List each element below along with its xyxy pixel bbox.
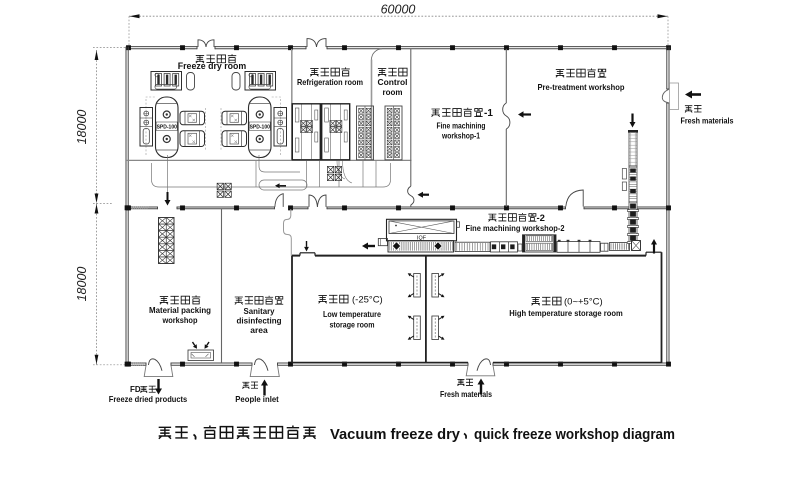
- svg-text:Fresh materials: Fresh materials: [440, 389, 492, 399]
- svg-text:disinfecting: disinfecting: [237, 316, 282, 326]
- svg-text:SPD-100: SPD-100: [157, 125, 178, 131]
- svg-text:SPD-100: SPD-100: [250, 125, 271, 131]
- svg-text:Low temperature: Low temperature: [323, 309, 381, 319]
- svg-text:(-25°C): (-25°C): [352, 295, 383, 306]
- svg-text:Pre-treatment workshop: Pre-treatment workshop: [538, 82, 625, 92]
- svg-text:Sanitary: Sanitary: [244, 306, 275, 316]
- svg-text:18000: 18000: [75, 267, 89, 302]
- svg-text:area: area: [250, 325, 268, 335]
- svg-text:Fine machining: Fine machining: [437, 120, 486, 130]
- svg-text:workshop: workshop: [162, 315, 198, 325]
- svg-text:Fresh materials: Fresh materials: [681, 116, 734, 126]
- svg-text:FD: FD: [130, 385, 141, 394]
- svg-text:quick freeze workshop diagram: quick freeze workshop diagram: [474, 427, 675, 443]
- svg-text:60000: 60000: [381, 2, 416, 16]
- svg-text:Vacuum freeze dry: Vacuum freeze dry: [330, 427, 460, 443]
- svg-text:Freeze dried products: Freeze dried products: [109, 394, 188, 404]
- svg-text:storage room: storage room: [330, 319, 375, 329]
- svg-text:(0~+5°C): (0~+5°C): [564, 297, 603, 308]
- svg-text:workshop-1: workshop-1: [441, 130, 480, 140]
- svg-text:People inlet: People inlet: [235, 394, 279, 404]
- svg-text:room: room: [383, 87, 403, 97]
- svg-text:Freeze dry room: Freeze dry room: [178, 61, 247, 72]
- svg-text:Material packing: Material packing: [149, 305, 211, 315]
- svg-text:High temperature storage room: High temperature storage room: [509, 308, 623, 318]
- svg-text:Fine machining workshop-2: Fine machining workshop-2: [466, 223, 565, 233]
- svg-text:Control: Control: [378, 77, 408, 87]
- svg-text:-1: -1: [484, 108, 493, 119]
- svg-text:Refrigeration room: Refrigeration room: [297, 77, 363, 87]
- svg-text:18000: 18000: [75, 110, 89, 145]
